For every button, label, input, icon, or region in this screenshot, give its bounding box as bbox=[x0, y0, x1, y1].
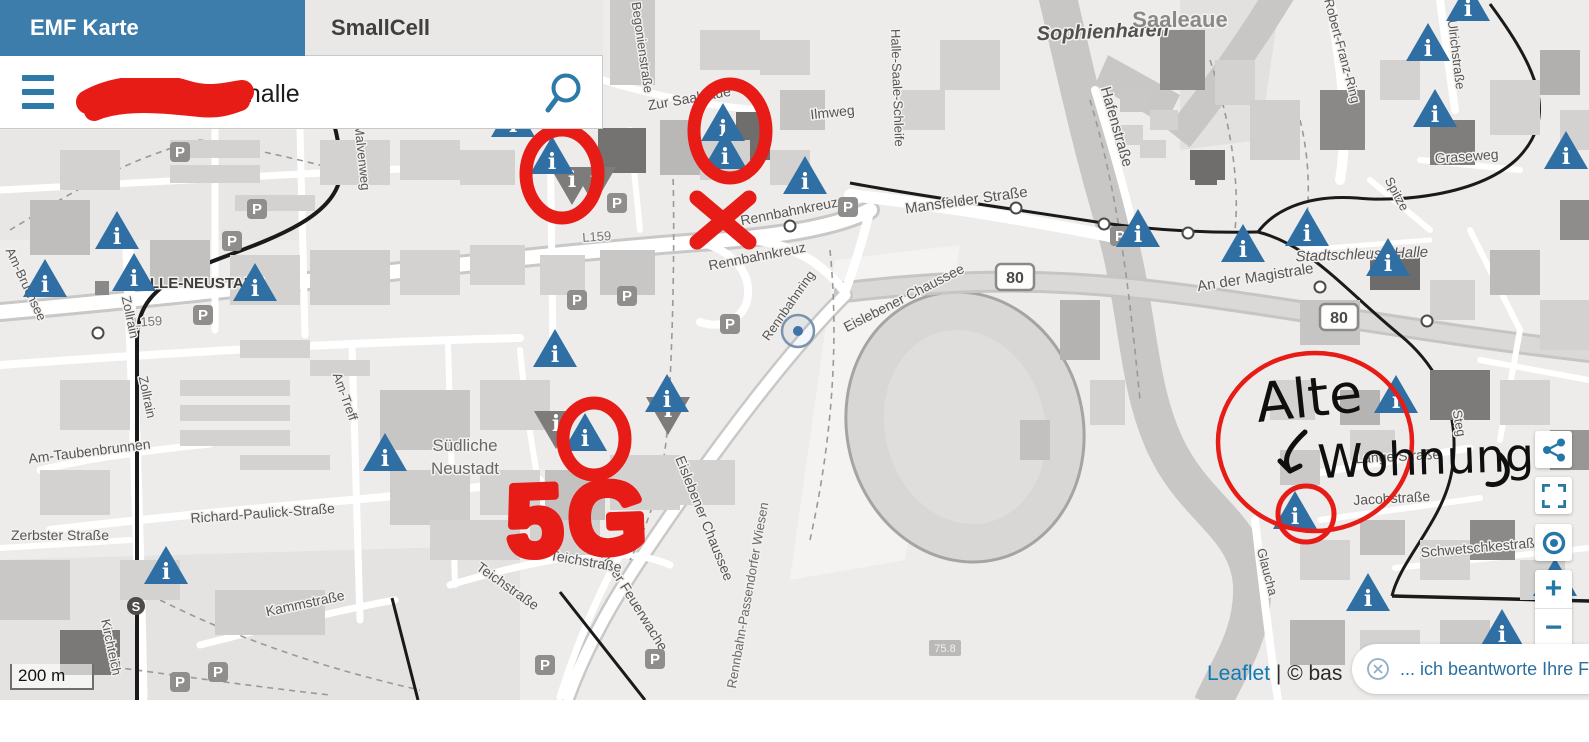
tab-emf-karte[interactable]: EMF Karte bbox=[0, 0, 305, 56]
hamburger-menu-icon[interactable] bbox=[22, 75, 54, 109]
emf-map-app: SophienhafenSaaleaueHafenstraßeHalle-Saa… bbox=[0, 0, 1589, 742]
svg-text:75.8: 75.8 bbox=[934, 643, 955, 655]
svg-text:P: P bbox=[227, 233, 237, 250]
tab-smallcell[interactable]: SmallCell bbox=[305, 0, 603, 56]
svg-text:P: P bbox=[175, 144, 185, 161]
zoom-in-button[interactable]: + bbox=[1535, 570, 1572, 608]
svg-text:i: i bbox=[1562, 144, 1570, 170]
attribution-text: | © bas bbox=[1276, 662, 1342, 685]
svg-text:P: P bbox=[572, 292, 582, 309]
transit-stop-icon bbox=[1422, 316, 1433, 327]
svg-text:i: i bbox=[1424, 36, 1432, 62]
svg-text:i: i bbox=[1291, 504, 1299, 530]
map-label: Südliche bbox=[432, 436, 497, 455]
scale-control: 200 m bbox=[10, 664, 94, 690]
red-redaction-scribble bbox=[70, 78, 260, 124]
location-marker bbox=[782, 315, 814, 347]
share-button[interactable] bbox=[1535, 431, 1572, 468]
parking-icon: P bbox=[208, 662, 228, 682]
svg-text:i: i bbox=[721, 144, 729, 170]
svg-text:i: i bbox=[548, 149, 556, 175]
svg-text:i: i bbox=[551, 342, 559, 368]
zoom-out-button[interactable]: − bbox=[1535, 608, 1572, 647]
zoom-controls: + − bbox=[1535, 570, 1572, 647]
svg-text:i: i bbox=[381, 446, 389, 472]
locate-button[interactable] bbox=[1535, 524, 1572, 561]
svg-text:i: i bbox=[1134, 222, 1142, 248]
svg-text:P: P bbox=[725, 316, 735, 333]
circled-x-icon[interactable] bbox=[1366, 657, 1390, 681]
svg-text:i: i bbox=[41, 272, 49, 298]
svg-text:80: 80 bbox=[1006, 270, 1024, 287]
parking-icon: P bbox=[222, 231, 242, 251]
svg-text:P: P bbox=[252, 201, 262, 218]
svg-text:i: i bbox=[130, 266, 138, 292]
parking-icon: P bbox=[645, 649, 665, 669]
parking-icon: P bbox=[617, 286, 637, 306]
tab-smallcell-label: SmallCell bbox=[331, 15, 430, 41]
map-label: Zerbster Straße bbox=[11, 527, 109, 543]
svg-text:i: i bbox=[1364, 586, 1372, 612]
svg-text:i: i bbox=[251, 276, 259, 302]
parking-icon: P bbox=[170, 142, 190, 162]
parking-icon: P bbox=[170, 672, 190, 692]
parking-icon: P bbox=[567, 290, 587, 310]
svg-text:P: P bbox=[175, 674, 185, 691]
red-5g-annotation: 5G bbox=[505, 461, 654, 578]
parking-icon: P bbox=[193, 305, 213, 325]
search-bar[interactable]: , halle bbox=[0, 56, 603, 129]
svg-text:i: i bbox=[162, 559, 170, 585]
map-label: L159 bbox=[582, 228, 612, 245]
transit-stop-icon bbox=[785, 221, 796, 232]
map-label: Neustadt bbox=[431, 459, 499, 478]
share-icon bbox=[1542, 438, 1566, 462]
svg-text:S: S bbox=[132, 599, 141, 614]
tab-emf-karte-label: EMF Karte bbox=[30, 15, 139, 41]
svg-text:P: P bbox=[622, 288, 632, 305]
svg-text:P: P bbox=[612, 195, 622, 212]
locate-icon bbox=[1541, 530, 1567, 556]
fullscreen-button[interactable] bbox=[1535, 477, 1572, 514]
parking-icon: P bbox=[535, 655, 555, 675]
svg-text:P: P bbox=[843, 199, 853, 216]
svg-text:80: 80 bbox=[1330, 310, 1348, 327]
chat-bubble[interactable]: ... ich beantworte Ihre Fragen! bbox=[1352, 644, 1589, 694]
svg-text:P: P bbox=[650, 651, 660, 668]
parking-icon: P bbox=[838, 197, 858, 217]
svg-text:Alte: Alte bbox=[1253, 361, 1365, 435]
fullscreen-icon bbox=[1542, 484, 1566, 508]
sbahn-icon: S bbox=[127, 597, 145, 615]
svg-text:i: i bbox=[1239, 237, 1247, 263]
transit-stop-icon bbox=[1183, 228, 1194, 239]
svg-text:i: i bbox=[1431, 102, 1439, 128]
transit-stop-icon bbox=[93, 328, 104, 339]
chat-text: ... ich beantworte Ihre Fragen! bbox=[1400, 659, 1589, 680]
elevation-badge: 75.8 bbox=[929, 640, 961, 656]
transit-stop-icon bbox=[1315, 282, 1326, 293]
svg-text:i: i bbox=[113, 224, 121, 250]
parking-icon: P bbox=[247, 199, 267, 219]
parking-icon: P bbox=[720, 314, 740, 334]
transit-stop-icon bbox=[1099, 219, 1110, 230]
attribution: Leaflet | © bas bbox=[1207, 662, 1342, 686]
svg-text:i: i bbox=[663, 387, 671, 413]
svg-text:i: i bbox=[1303, 221, 1311, 247]
svg-text:i: i bbox=[1384, 251, 1392, 277]
svg-text:P: P bbox=[213, 664, 223, 681]
svg-text:i: i bbox=[1464, 0, 1472, 22]
svg-text:P: P bbox=[540, 657, 550, 674]
leaflet-link[interactable]: Leaflet bbox=[1207, 662, 1270, 685]
svg-text:i: i bbox=[581, 426, 589, 452]
road-number-badge: 80 bbox=[996, 264, 1034, 290]
svg-text:P: P bbox=[198, 307, 208, 324]
map-label: Saaleaue bbox=[1132, 7, 1227, 32]
parking-icon: P bbox=[607, 193, 627, 213]
svg-text:i: i bbox=[801, 169, 809, 195]
road-number-badge: 80 bbox=[1320, 304, 1358, 330]
search-icon[interactable] bbox=[540, 70, 584, 116]
transit-stop-icon bbox=[1011, 203, 1022, 214]
tab-bar: EMF Karte SmallCell bbox=[0, 0, 603, 56]
